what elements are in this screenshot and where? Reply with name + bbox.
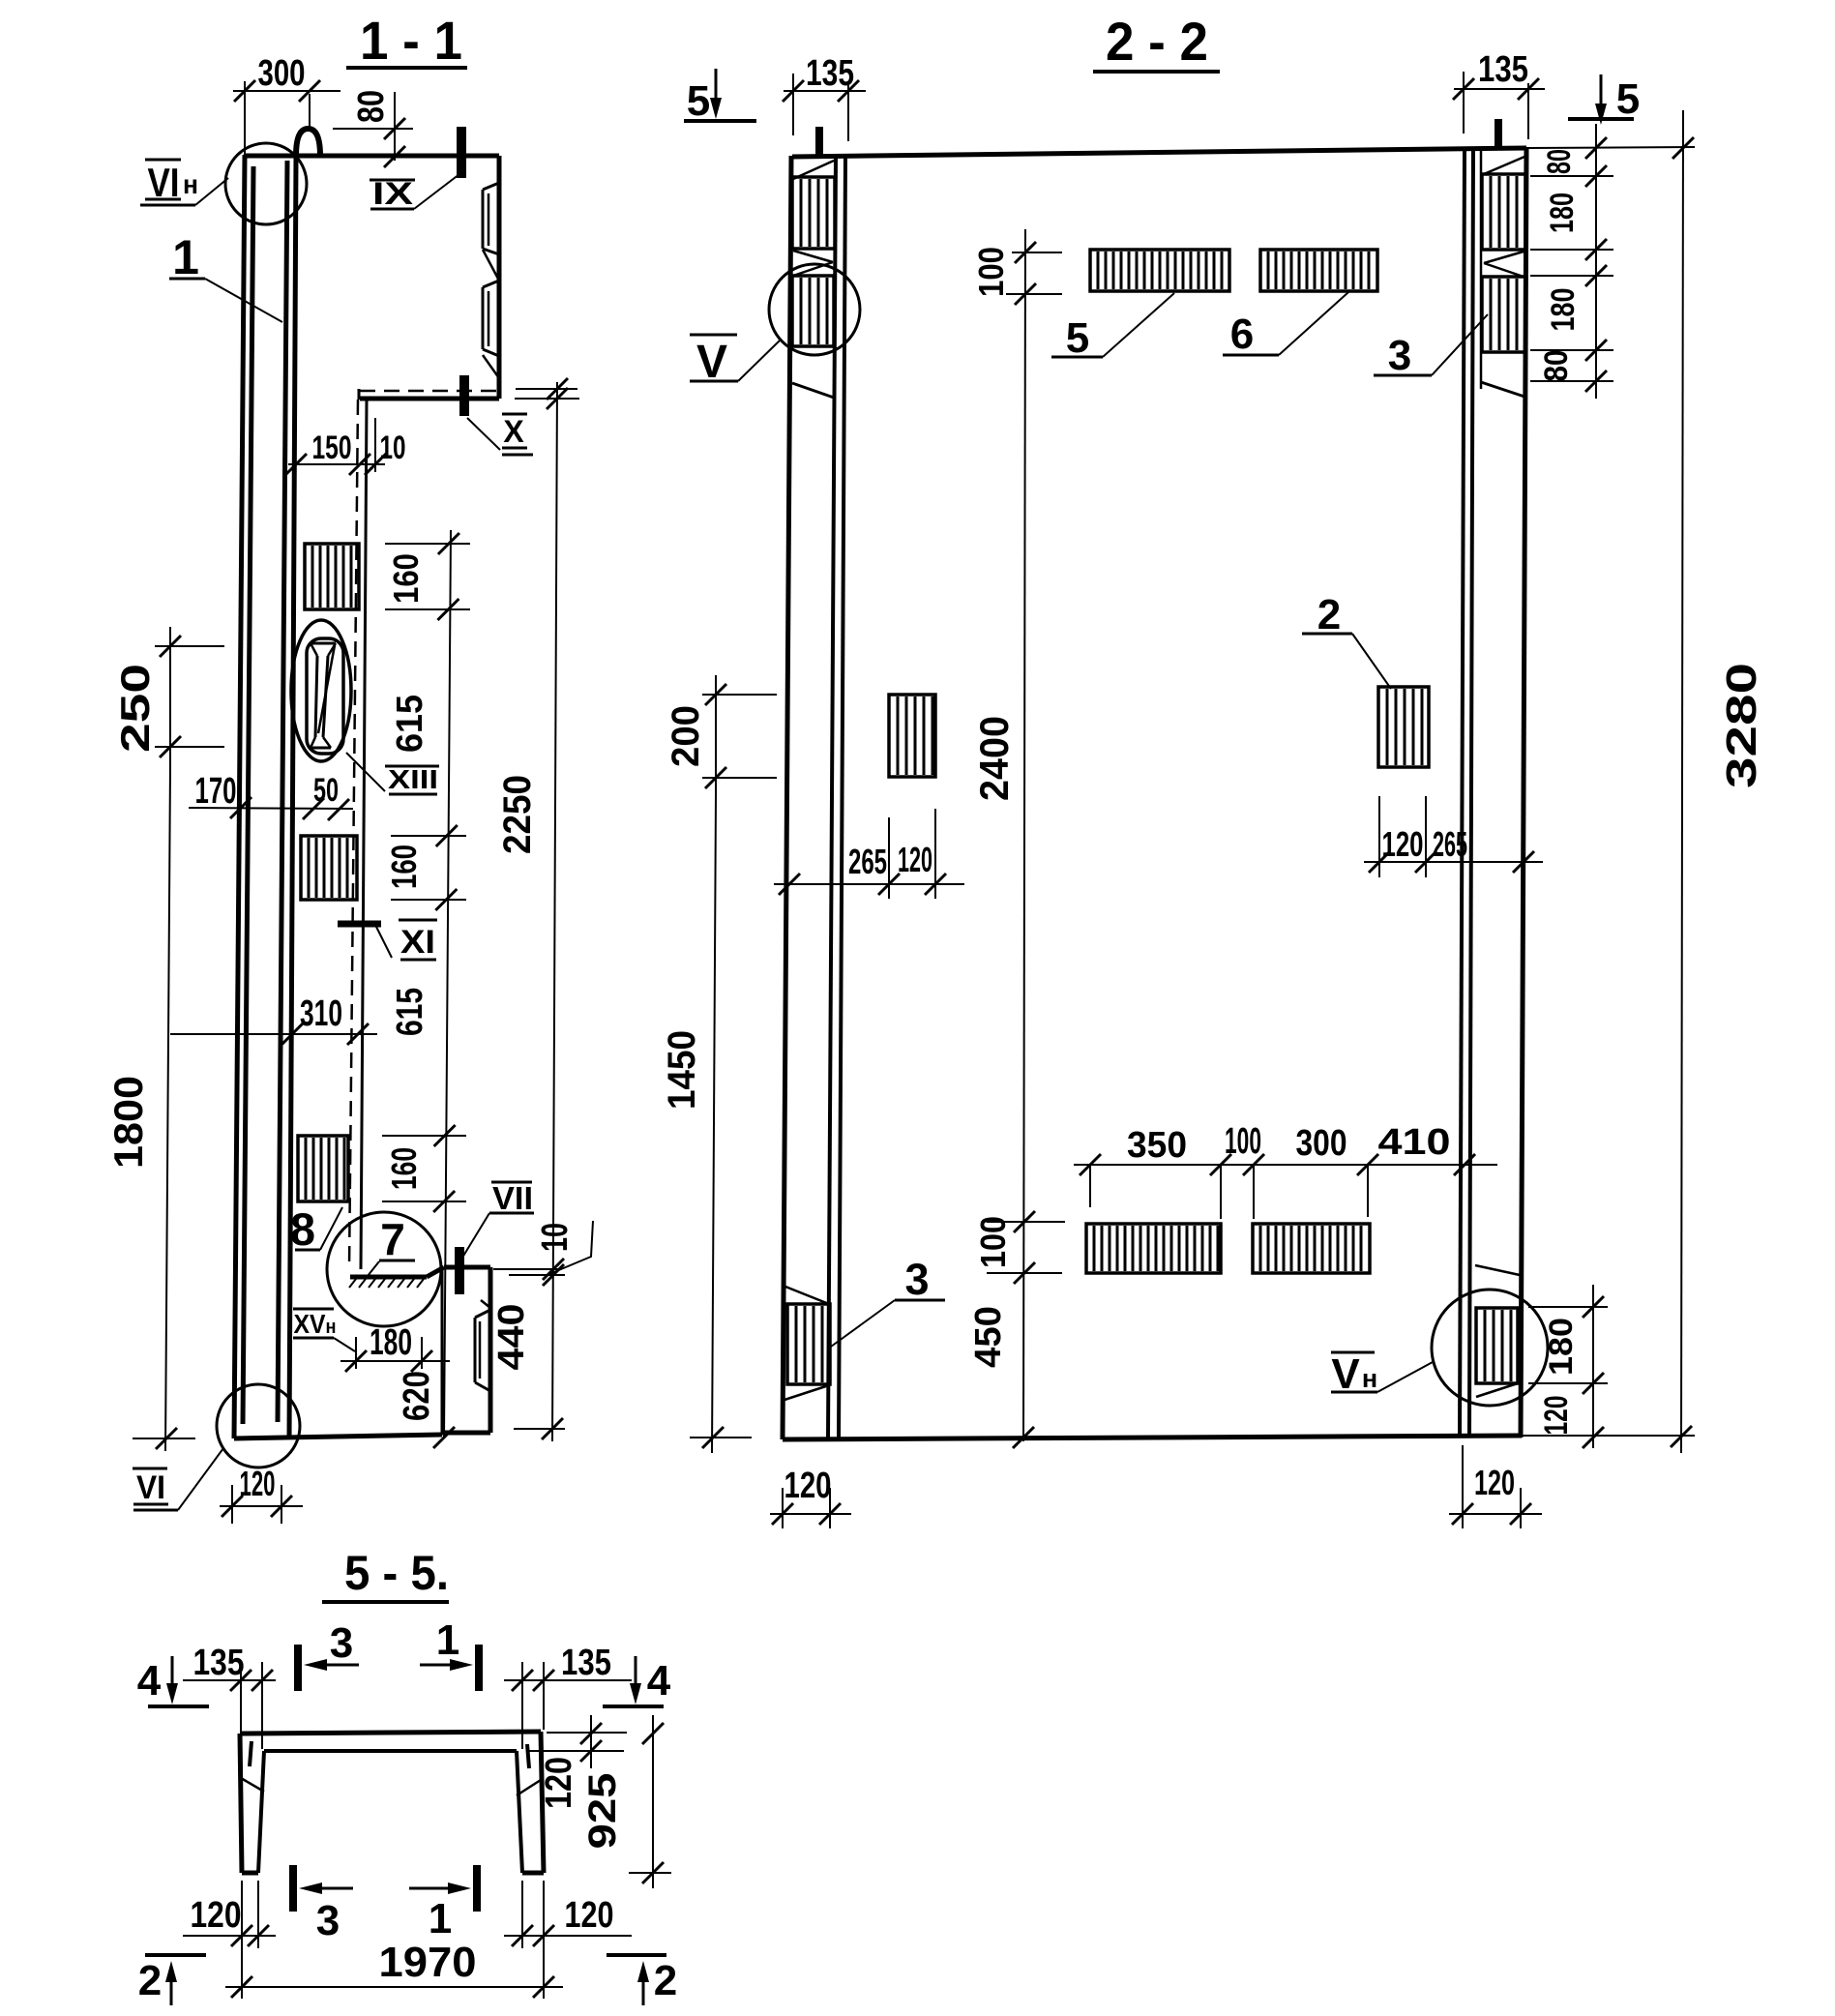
svg-text:1: 1 [436, 1616, 459, 1664]
svg-text:100: 100 [973, 1216, 1013, 1268]
svg-text:410: 410 [1378, 1122, 1451, 1163]
svg-text:120: 120 [1538, 1396, 1575, 1436]
svg-text:265: 265 [1433, 824, 1467, 864]
svg-text:200: 200 [665, 705, 707, 767]
svg-text:440: 440 [491, 1304, 532, 1371]
svg-text:135: 135 [806, 53, 854, 94]
svg-text:5: 5 [687, 77, 710, 125]
svg-text:4: 4 [137, 1657, 162, 1705]
svg-text:2 - 2: 2 - 2 [1106, 11, 1208, 72]
svg-text:620: 620 [397, 1371, 437, 1421]
svg-text:300: 300 [1296, 1123, 1347, 1164]
svg-text:7: 7 [380, 1214, 405, 1264]
svg-text:XIII: XIII [388, 764, 438, 794]
svg-text:50: 50 [313, 772, 339, 809]
svg-text:н: н [1362, 1364, 1377, 1393]
svg-text:н: н [183, 169, 198, 199]
svg-text:VII: VII [492, 1180, 533, 1216]
svg-text:5 - 5.: 5 - 5. [344, 1546, 449, 1600]
svg-text:135: 135 [193, 1643, 245, 1683]
svg-text:1 - 1: 1 - 1 [360, 10, 462, 71]
svg-text:615: 615 [390, 988, 430, 1036]
svg-text:8: 8 [290, 1203, 315, 1255]
svg-text:170: 170 [195, 771, 237, 812]
svg-text:XV: XV [294, 1309, 326, 1339]
svg-text:10: 10 [535, 1223, 576, 1252]
svg-text:180: 180 [1545, 288, 1582, 332]
svg-text:3280: 3280 [1718, 663, 1765, 788]
svg-text:1: 1 [429, 1895, 452, 1942]
svg-text:120: 120 [240, 1464, 276, 1503]
svg-text:10: 10 [380, 430, 406, 466]
svg-text:160: 160 [386, 553, 426, 604]
svg-text:120: 120 [1382, 824, 1424, 864]
svg-text:1970: 1970 [379, 1939, 477, 1986]
svg-text:3: 3 [316, 1897, 340, 1944]
svg-text:300: 300 [258, 53, 306, 94]
svg-text:80: 80 [1541, 149, 1578, 174]
svg-text:180: 180 [1544, 193, 1581, 233]
svg-text:450: 450 [968, 1306, 1009, 1368]
svg-text:1: 1 [172, 230, 199, 284]
svg-text:120: 120 [1474, 1463, 1515, 1502]
svg-text:350: 350 [1127, 1125, 1187, 1166]
svg-text:160: 160 [384, 1147, 424, 1190]
svg-text:160: 160 [384, 845, 424, 889]
svg-text:135: 135 [561, 1643, 611, 1683]
svg-text:IX: IX [372, 176, 414, 211]
svg-text:2250: 2250 [496, 775, 539, 854]
svg-text:180: 180 [1543, 1318, 1580, 1376]
svg-text:120: 120 [191, 1895, 242, 1936]
svg-text:250: 250 [112, 664, 158, 753]
svg-text:3: 3 [904, 1255, 929, 1304]
svg-text:150: 150 [312, 430, 352, 466]
svg-text:4: 4 [647, 1657, 671, 1705]
svg-text:2: 2 [654, 1957, 677, 2004]
svg-text:3: 3 [330, 1619, 353, 1667]
svg-text:100: 100 [1225, 1121, 1261, 1162]
svg-text:2: 2 [1317, 591, 1341, 638]
svg-text:1450: 1450 [661, 1030, 703, 1110]
svg-text:925: 925 [581, 1773, 624, 1850]
svg-text:615: 615 [390, 695, 430, 753]
svg-text:5: 5 [1616, 75, 1640, 123]
svg-text:80: 80 [1538, 350, 1575, 382]
svg-text:120: 120 [784, 1466, 832, 1506]
svg-text:2400: 2400 [971, 716, 1017, 801]
svg-text:3: 3 [1388, 332, 1411, 379]
svg-text:265: 265 [848, 842, 887, 881]
svg-text:100: 100 [971, 247, 1011, 297]
svg-text:180: 180 [370, 1322, 412, 1363]
svg-text:120: 120 [565, 1895, 614, 1936]
svg-text:120: 120 [898, 840, 932, 879]
svg-text:2: 2 [138, 1957, 162, 2004]
svg-text:VI: VI [136, 1469, 165, 1506]
svg-text:н: н [326, 1317, 337, 1338]
svg-text:5: 5 [1066, 314, 1089, 362]
svg-text:120: 120 [539, 1757, 579, 1809]
svg-text:X: X [503, 414, 524, 449]
svg-text:1800: 1800 [105, 1076, 151, 1169]
svg-text:XI: XI [400, 924, 435, 961]
svg-text:6: 6 [1230, 311, 1254, 358]
svg-text:80: 80 [351, 90, 392, 123]
svg-text:310: 310 [300, 993, 342, 1034]
svg-text:135: 135 [1478, 49, 1528, 90]
